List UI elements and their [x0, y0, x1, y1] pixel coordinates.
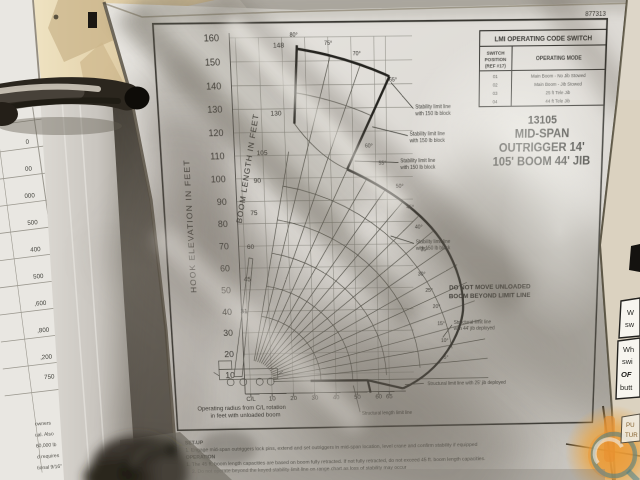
svg-text:W: W	[627, 308, 634, 317]
svg-text:butt: butt	[620, 383, 632, 392]
svg-text:sw: sw	[625, 320, 635, 329]
svg-text:PU: PU	[626, 422, 635, 429]
svg-text:swi: swi	[622, 357, 633, 366]
svg-text:OF: OF	[621, 370, 632, 379]
svg-text:TUR: TUR	[625, 432, 638, 439]
svg-text:Wh: Wh	[623, 345, 634, 354]
